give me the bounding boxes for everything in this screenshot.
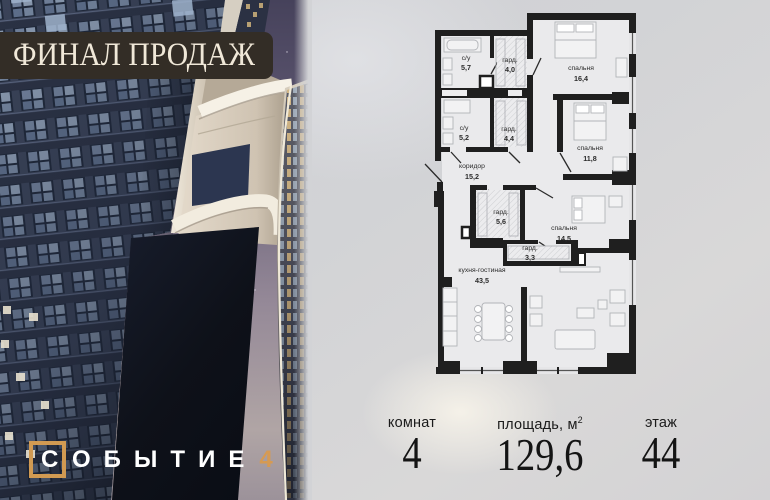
- svg-text:16,4: 16,4: [574, 74, 588, 83]
- svg-text:кухня-гостиная: кухня-гостиная: [458, 267, 505, 274]
- svg-text:гард.: гард.: [502, 57, 518, 64]
- svg-text:спальня: спальня: [551, 225, 577, 232]
- svg-text:гард.: гард.: [522, 245, 538, 252]
- svg-text:коридор: коридор: [459, 163, 485, 170]
- svg-text:14,5: 14,5: [557, 234, 571, 243]
- svg-text:4,4: 4,4: [504, 134, 514, 143]
- svg-text:гард.: гард.: [493, 209, 509, 216]
- svg-text:спальня: спальня: [577, 145, 603, 152]
- svg-text:с/у: с/у: [462, 55, 471, 62]
- svg-text:15,2: 15,2: [465, 172, 479, 181]
- svg-text:43,5: 43,5: [475, 276, 489, 285]
- svg-text:гард.: гард.: [501, 126, 517, 133]
- svg-text:с/у: с/у: [460, 125, 469, 132]
- svg-text:5,2: 5,2: [459, 133, 469, 142]
- svg-text:4,0: 4,0: [505, 65, 515, 74]
- svg-text:5,6: 5,6: [496, 217, 506, 226]
- svg-text:спальня: спальня: [568, 65, 594, 72]
- svg-text:5,7: 5,7: [461, 63, 471, 72]
- svg-text:3,3: 3,3: [525, 253, 535, 262]
- svg-text:11,8: 11,8: [583, 154, 597, 163]
